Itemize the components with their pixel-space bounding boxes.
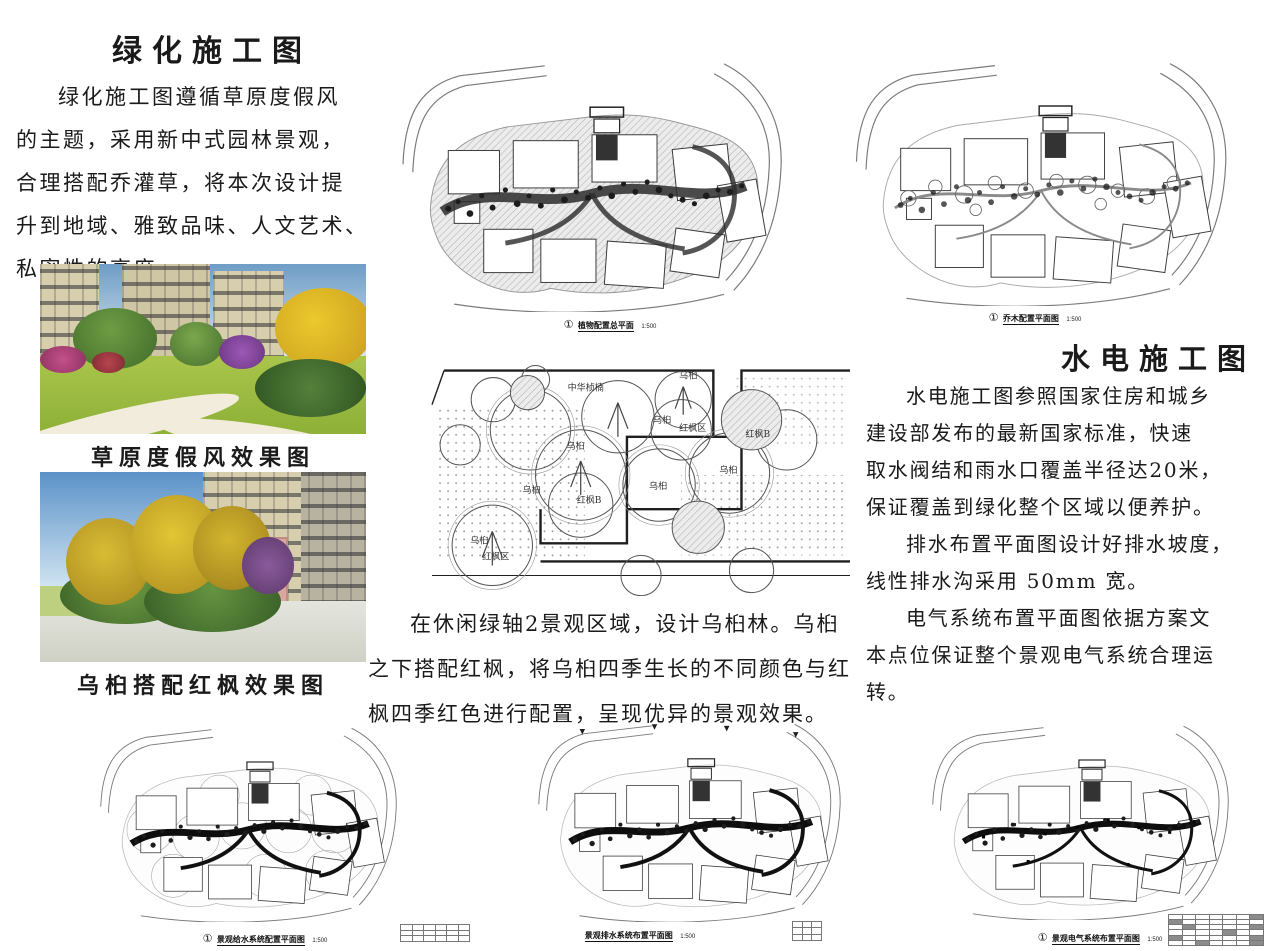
paragraph-line: 线性排水沟采用 50mm 宽。 [866, 563, 1264, 600]
legend-table [1168, 914, 1264, 946]
tree [170, 322, 222, 366]
plan-caption: 景观排水系统布置平面图 1:500 [480, 925, 800, 943]
water-supply-plan-drawing [34, 722, 466, 922]
circled-number-icon: ① [203, 932, 213, 945]
paragraph-line: 取水阀结和雨水口覆盖半径达20米， [866, 452, 1264, 489]
photo1-caption: 草原度假风效果图 [40, 440, 366, 472]
plant-label: 乌桕 [679, 370, 697, 382]
paragraph-line: 电气系统布置平面图依据方案文 [866, 600, 1264, 637]
tallow-red-maple-rendering-photo [40, 472, 366, 662]
plant-label: 红枫区 [482, 550, 509, 562]
greening-paragraph: 绿化施工图遵循草原度假风 的主题，采用新中式园林景观， 合理搭配乔灌草，将本次设… [16, 76, 394, 291]
plan-title: 植物配置总平面 [578, 321, 634, 332]
yellow-tree [275, 288, 366, 370]
plan-title: 景观排水系统布置平面图 [585, 931, 673, 942]
circled-number-icon: ① [564, 318, 574, 331]
plant-label: 乌桕 [567, 440, 585, 452]
purple-red-maple [242, 537, 294, 594]
paragraph-line: 本点位保证整个景观电气系统合理运 [866, 637, 1264, 674]
paragraph-line: 的主题，采用新中式园林景观， [16, 119, 394, 162]
plan-scale: 1:500 [312, 938, 327, 944]
plumbing-electrical-section-title: 水电施工图 [880, 336, 1256, 378]
paragraph-line: 保证覆盖到绿化整个区域以便养护。 [866, 489, 1264, 526]
electrical-plan-drawing [895, 720, 1268, 920]
tree-layout-plan-drawing [818, 56, 1268, 306]
planting-total-plan-drawing [396, 56, 792, 312]
plan-title: 景观电气系统布置平面图 [1052, 934, 1140, 945]
paragraph-line: 建设部发布的最新国家标准，快速 [866, 415, 1264, 452]
paragraph-line: 之下搭配红枫，将乌桕四季生长的不同颜色与红 [368, 647, 862, 692]
plan-caption: ① 植物配置总平面 1:500 [450, 315, 770, 333]
plumbing-electrical-paragraphs: 水电施工图参照国家住房和城乡 建设部发布的最新国家标准，快速 取水阀结和雨水口覆… [866, 378, 1264, 711]
plant-label: 中华桢楠 [568, 382, 604, 394]
photo2-caption: 乌桕搭配红枫效果图 [40, 668, 366, 700]
circled-number-icon: ① [1038, 931, 1048, 944]
plan-scale: 1:500 [680, 934, 695, 940]
presentation-board: 绿化施工图 绿化施工图遵循草原度假风 的主题，采用新中式园林景观， 合理搭配乔灌… [0, 0, 1268, 951]
tallow-grove-detail-plan-drawing: 中华桢楠 乌桕 乌桕 红枫区 红枫B 乌桕 乌桕 红枫B 乌桕 乌桕 乌桕 红枫… [430, 344, 852, 596]
grassland-style-rendering-photo [40, 264, 366, 434]
plan-title: 乔木配置平面图 [1003, 314, 1059, 325]
tallow-design-paragraph: 在休闲绿轴2景观区域，设计乌桕林。乌桕 之下搭配红枫，将乌桕四季生长的不同颜色与… [368, 602, 862, 737]
title-block-table [400, 924, 470, 942]
paragraph-line: 升到地域、雅致品味、人文艺术、 [16, 205, 394, 248]
plan-scale: 1:500 [1066, 317, 1081, 323]
circled-number-icon: ① [989, 311, 999, 324]
plan-caption: ① 乔木配置平面图 1:500 [875, 308, 1195, 326]
plant-label: 乌桕 [653, 414, 671, 426]
greening-section-title: 绿化施工图 [62, 26, 362, 70]
plan-caption: ① 景观给水系统配置平面图 1:500 [105, 929, 425, 947]
red-bush [92, 352, 125, 372]
building [294, 472, 366, 620]
plant-label: 红枫区 [679, 422, 706, 434]
pink-bush [40, 346, 86, 373]
plant-label: 乌桕 [522, 484, 540, 496]
plan-title: 景观给水系统配置平面图 [217, 935, 305, 946]
title-block-table [792, 921, 822, 941]
plan-scale: 1:500 [641, 324, 656, 330]
plant-label: 红枫B [577, 494, 602, 506]
paragraph-line: 排水布置平面图设计好排水坡度， [866, 526, 1264, 563]
paragraph-line: 在休闲绿轴2景观区域，设计乌桕林。乌桕 [368, 602, 862, 647]
drainage-plan-drawing [480, 718, 902, 922]
plant-label: 乌桕 [649, 480, 667, 492]
plant-label: 乌桕 [719, 464, 737, 476]
paragraph-line: 绿化施工图遵循草原度假风 [16, 76, 394, 119]
plant-label: 红枫B [745, 428, 770, 440]
hedge [255, 359, 366, 417]
paragraph-line: 合理搭配乔灌草，将本次设计提 [16, 162, 394, 205]
plant-label: 乌桕 [470, 534, 488, 546]
paragraph-line: 转。 [866, 674, 1264, 711]
plan-scale: 1:500 [1147, 937, 1162, 943]
paragraph-line: 水电施工图参照国家住房和城乡 [866, 378, 1264, 415]
